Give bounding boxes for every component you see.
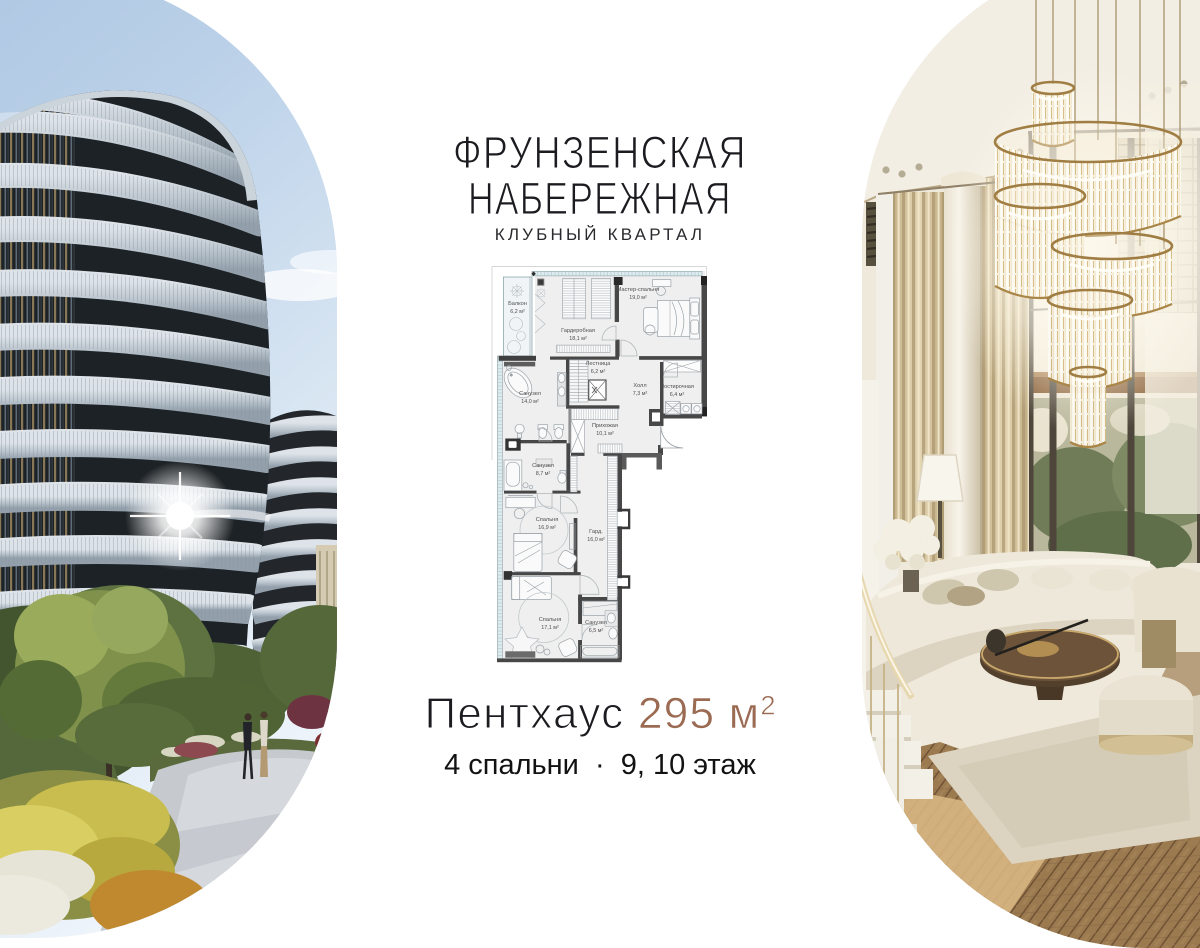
svg-text:6,5 м²: 6,5 м² bbox=[589, 628, 604, 634]
svg-text:Лестница: Лестница bbox=[586, 361, 612, 367]
svg-text:Холл: Холл bbox=[633, 383, 646, 389]
svg-text:Гардеробная: Гардеробная bbox=[561, 328, 595, 334]
svg-text:16,0 м²: 16,0 м² bbox=[587, 537, 605, 543]
svg-text:Санузел: Санузел bbox=[585, 620, 607, 626]
svg-text:6,2 м²: 6,2 м² bbox=[591, 369, 606, 375]
svg-text:10,1 м²: 10,1 м² bbox=[596, 431, 614, 437]
svg-text:6,4 м²: 6,4 м² bbox=[670, 392, 685, 398]
svg-text:18,1 м²: 18,1 м² bbox=[569, 336, 587, 342]
svg-text:Постирочная: Постирочная bbox=[660, 384, 694, 390]
svg-text:Гард.: Гард. bbox=[589, 529, 603, 535]
svg-text:Прихожая: Прихожая bbox=[592, 423, 618, 429]
svg-text:Спальня: Спальня bbox=[536, 517, 558, 523]
svg-text:7,3 м²: 7,3 м² bbox=[633, 391, 648, 397]
svg-text:17,1 м²: 17,1 м² bbox=[541, 625, 559, 631]
svg-text:8,7 м²: 8,7 м² bbox=[536, 471, 551, 477]
svg-text:6,2 м²: 6,2 м² bbox=[510, 309, 525, 315]
svg-text:19,0 м²: 19,0 м² bbox=[629, 295, 647, 301]
svg-text:Санузел: Санузел bbox=[532, 463, 554, 469]
svg-text:Санузел: Санузел bbox=[519, 391, 541, 397]
svg-text:Спальня: Спальня bbox=[539, 617, 561, 623]
svg-text:Балкон: Балкон bbox=[508, 301, 527, 307]
svg-text:Мастер-спальня: Мастер-спальня bbox=[617, 287, 659, 293]
svg-text:14,0 м²: 14,0 м² bbox=[521, 399, 539, 405]
svg-text:16,9 м²: 16,9 м² bbox=[538, 525, 556, 531]
